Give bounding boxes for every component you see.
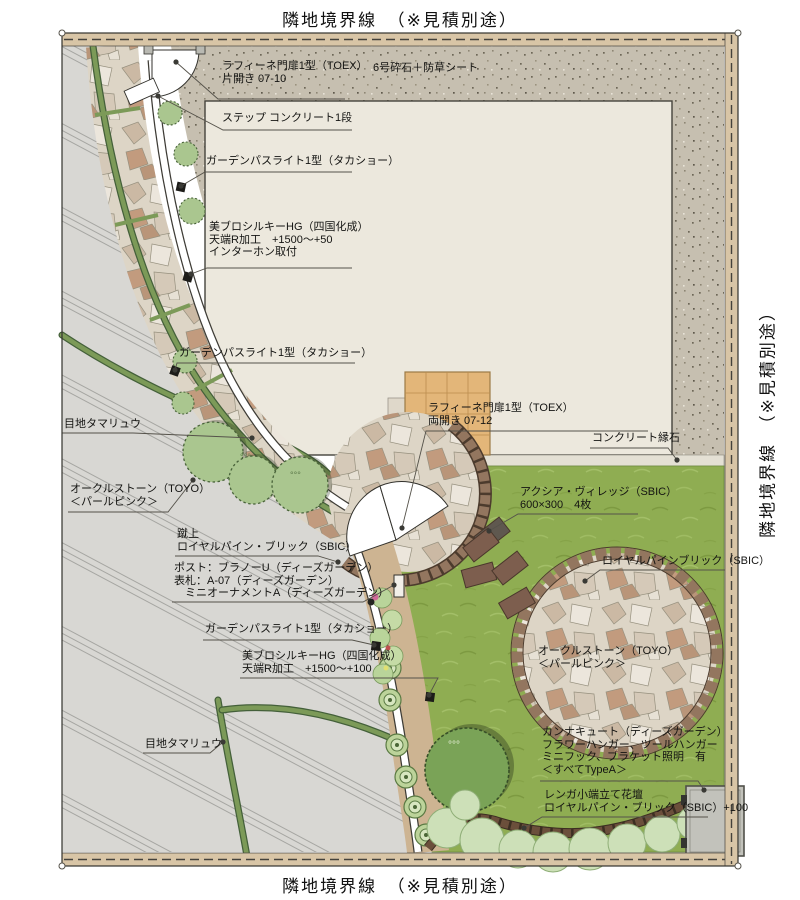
annotation-line: ガーデンパスライト1型（タカショー） bbox=[206, 155, 399, 168]
annotation-line: 6号砕石＋防草シート bbox=[373, 62, 478, 75]
annotation-line: フラワーハンガー、ツールハンガー bbox=[542, 739, 728, 752]
annotation-line: 美ブロシルキーHG（四国化成） bbox=[242, 650, 402, 663]
annotation-pathlight-1: ガーデンパスライト1型（タカショー） bbox=[206, 155, 399, 168]
annotation-line: オークルストーン（TOYO） bbox=[538, 645, 678, 658]
annotation-gate-double: ラフィーネ門扉1型（TOEX）両開き 07-12 bbox=[428, 402, 574, 427]
annotation-joint-tamaryu-lower: 目地タマリュウ bbox=[145, 738, 222, 751]
annotation-line: インターホン取付 bbox=[209, 246, 369, 259]
annotation-line: ロイヤルパイン・ブリック（SBIC）+100 bbox=[544, 802, 748, 815]
annotation-ocru-stone-left: オークルストーン（TOYO）＜パールピンク＞ bbox=[70, 483, 210, 508]
annotation-line: コンクリート縁石 bbox=[592, 432, 680, 445]
annotation-step-concrete: ステップ コンクリート1段 bbox=[222, 112, 352, 125]
annotation-line: 目地タマリュウ bbox=[64, 418, 141, 431]
annotation-line: 表札：A-07（ディーズガーデン） bbox=[174, 575, 389, 588]
annotation-line: 天端R加工 +1500～+50 bbox=[209, 234, 369, 247]
annotation-line: 600×300 4枚 bbox=[520, 499, 677, 512]
annotation-line: ＜パールピンク＞ bbox=[538, 658, 678, 671]
annotation-gate-single: ラフィーネ門扉1型（TOEX）片開き 07-10 bbox=[222, 60, 368, 85]
annotation-gravel-sheet: 6号砕石＋防草シート bbox=[373, 62, 478, 75]
annotation-canna-cute: カンナキュート（ディーズガーデン）フラワーハンガー、ツールハンガーミニフック、ブ… bbox=[542, 726, 728, 776]
annotation-wall-lower: 美ブロシルキーHG（四国化成）天端R加工 +1500～+100 bbox=[242, 650, 402, 675]
annotation-line: オークルストーン（TOYO） bbox=[70, 483, 210, 496]
svg-text:°°°: °°° bbox=[240, 452, 251, 462]
annotation-line: ミニフック、ブラケット照明 有 bbox=[542, 751, 728, 764]
boundary-label-right: 隣地境界線 （※見積別途） bbox=[754, 302, 779, 538]
svg-text:°°°: °°° bbox=[448, 740, 460, 751]
annotation-concrete-curb: コンクリート縁石 bbox=[592, 432, 680, 445]
annotation-royal-pine-brick: ロイヤルパインブリック（SBIC） bbox=[602, 555, 770, 568]
annotation-line: 片開き 07-10 bbox=[222, 73, 368, 86]
annotation-joint-tamaryu-upper: 目地タマリュウ bbox=[64, 418, 141, 431]
annotation-line: アクシア・ヴィレッジ（SBIC） bbox=[520, 486, 677, 499]
annotation-line: ＜すべてTypeA＞ bbox=[542, 764, 728, 777]
boundary-label-bottom: 隣地境界線 （※見積別途） bbox=[282, 872, 518, 897]
annotation-riser-brick: 蹴上ロイヤルパイン・ブリック（SBIC） bbox=[177, 528, 356, 553]
annotation-line: ロイヤルパイン・ブリック（SBIC） bbox=[177, 541, 356, 554]
annotation-line: ラフィーネ門扉1型（TOEX） bbox=[428, 402, 574, 415]
annotation-line: ミニオーナメントA（ディーズガーデン） bbox=[174, 587, 389, 600]
annotation-axia-village: アクシア・ヴィレッジ（SBIC）600×300 4枚 bbox=[520, 486, 677, 511]
annotation-line: 美ブロシルキーHG（四国化成） bbox=[209, 221, 369, 234]
annotation-pathlight-2: ガーデンパスライト1型（タカショー） bbox=[179, 347, 372, 360]
annotation-line: レンガ小端立て花壇 bbox=[544, 789, 748, 802]
svg-text:°°°: °°° bbox=[290, 470, 301, 480]
annotation-brick-flowerbed: レンガ小端立て花壇ロイヤルパイン・ブリック（SBIC）+100 bbox=[544, 789, 748, 814]
annotation-line: 蹴上 bbox=[177, 528, 356, 541]
annotation-line: カンナキュート（ディーズガーデン） bbox=[542, 726, 728, 739]
annotation-line: ステップ コンクリート1段 bbox=[222, 112, 352, 125]
annotation-line: ＜パールピンク＞ bbox=[70, 496, 210, 509]
annotation-line: ロイヤルパインブリック（SBIC） bbox=[602, 555, 770, 568]
annotation-pathlight-3: ガーデンパスライト1型（タカショー） bbox=[205, 623, 398, 636]
annotation-line: ポスト：ブラノーU（ディーズガーデン） bbox=[174, 562, 389, 575]
boundary-label-top: 隣地境界線 （※見積別途） bbox=[282, 6, 518, 31]
annotation-wall-upper: 美ブロシルキーHG（四国化成）天端R加工 +1500～+50インターホン取付 bbox=[209, 221, 369, 259]
annotation-line: ガーデンパスライト1型（タカショー） bbox=[205, 623, 398, 636]
annotation-line: ガーデンパスライト1型（タカショー） bbox=[179, 347, 372, 360]
annotation-post-nameplate: ポスト：ブラノーU（ディーズガーデン）表札：A-07（ディーズガーデン） ミニオ… bbox=[174, 562, 389, 600]
annotation-line: 両開き 07-12 bbox=[428, 415, 574, 428]
garden-plan-drawing: °°° °°° °°° bbox=[0, 0, 800, 900]
annotation-line: ラフィーネ門扉1型（TOEX） bbox=[222, 60, 368, 73]
annotation-line: 目地タマリュウ bbox=[145, 738, 222, 751]
annotation-ocru-stone-circle: オークルストーン（TOYO）＜パールピンク＞ bbox=[538, 645, 678, 670]
annotation-line: 天端R加工 +1500～+100 bbox=[242, 663, 402, 676]
